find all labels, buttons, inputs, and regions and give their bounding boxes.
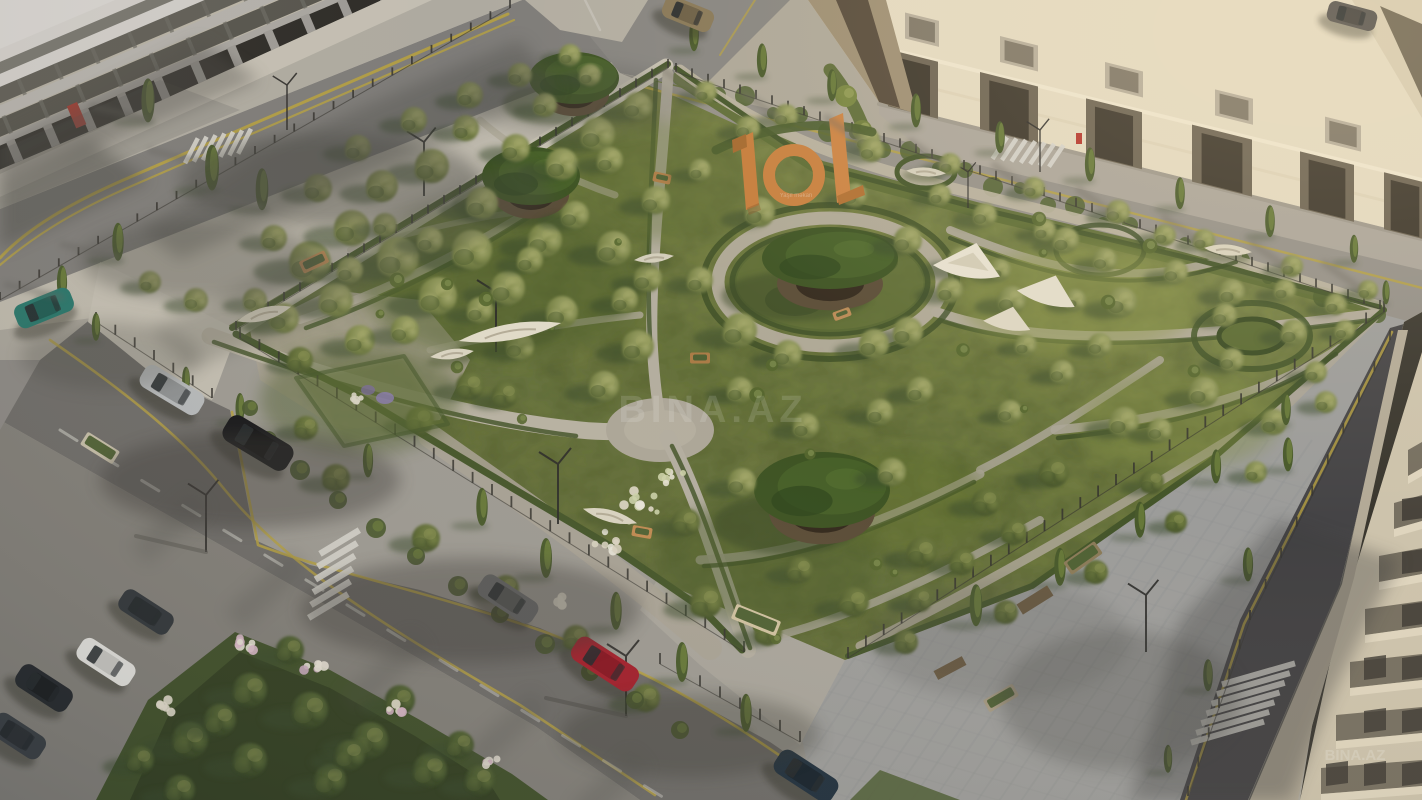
svg-text:BINA.AZ: BINA.AZ xyxy=(618,389,807,431)
svg-text:BINA.AZ: BINA.AZ xyxy=(1325,747,1386,764)
